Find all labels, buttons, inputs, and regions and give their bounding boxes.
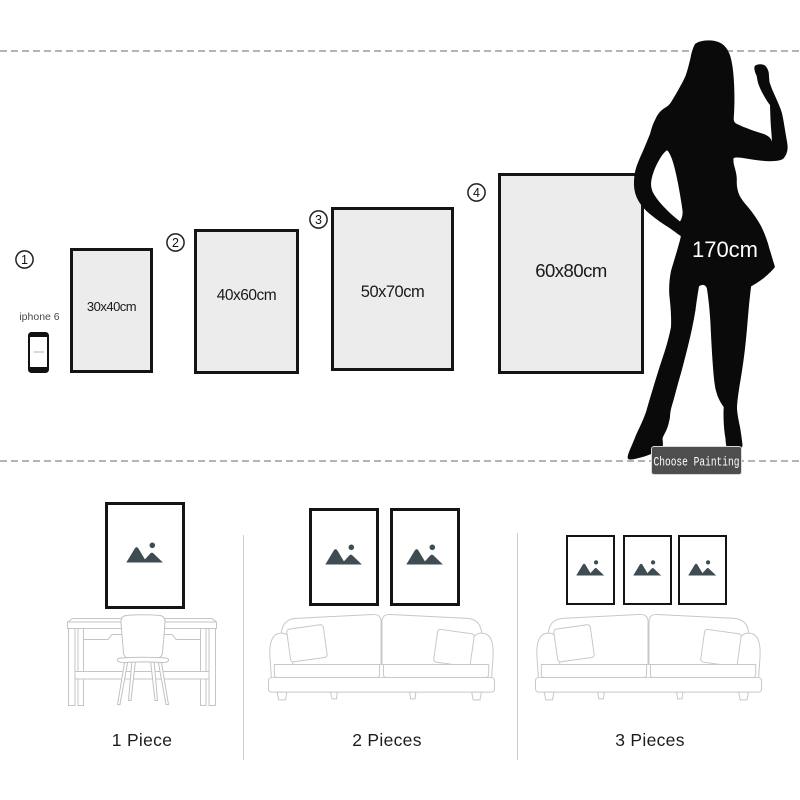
svg-text:4: 4 [473,186,480,200]
svg-text:3: 3 [315,213,322,227]
svg-text:Choose Painting: Choose Painting [654,455,740,470]
svg-text:1: 1 [21,253,28,267]
svg-text:2: 2 [172,236,179,250]
svg-text:170cm: 170cm [692,237,758,262]
